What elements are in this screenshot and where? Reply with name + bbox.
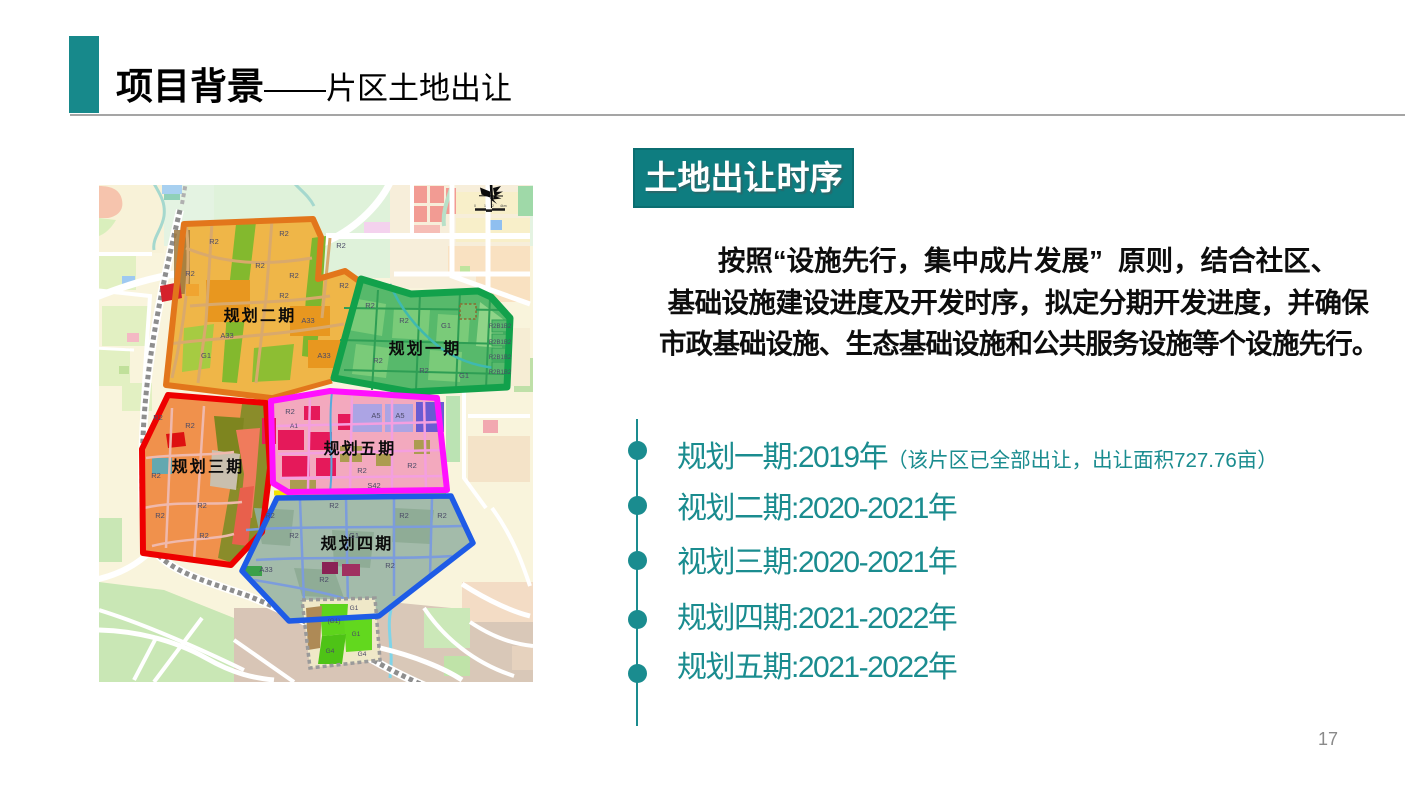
svg-text:(G1): (G1) — [328, 618, 341, 625]
svg-text:规划二期: 规划二期 — [224, 306, 297, 325]
svg-text:R2: R2 — [285, 407, 295, 416]
svg-text:R2: R2 — [357, 466, 367, 475]
svg-text:R2: R2 — [151, 471, 161, 480]
svg-text:G1: G1 — [441, 321, 451, 330]
svg-text:A5: A5 — [395, 411, 404, 420]
svg-text:规划五期: 规划五期 — [324, 439, 397, 458]
svg-text:R2: R2 — [437, 511, 447, 520]
svg-text:R2: R2 — [399, 511, 409, 520]
svg-text:R2: R2 — [365, 301, 375, 310]
svg-text:S42: S42 — [367, 481, 380, 490]
svg-text:R2: R2 — [197, 501, 207, 510]
svg-text:R2: R2 — [153, 413, 163, 422]
svg-text:R2: R2 — [155, 511, 165, 520]
svg-text:R2: R2 — [407, 461, 417, 470]
svg-text:R2: R2 — [199, 531, 209, 540]
svg-text:R2: R2 — [385, 561, 395, 570]
svg-text:G1: G1 — [459, 371, 469, 380]
svg-text:R2: R2 — [279, 229, 289, 238]
svg-text:R2: R2 — [373, 356, 383, 365]
svg-text:规划三期: 规划三期 — [172, 457, 245, 476]
svg-text:1: 1 — [484, 204, 486, 208]
svg-text:R2B1B2: R2B1B2 — [489, 340, 512, 346]
svg-text:A33: A33 — [220, 331, 233, 340]
svg-text:G4: G4 — [358, 651, 367, 658]
svg-text:G1: G1 — [201, 351, 211, 360]
svg-text:R2: R2 — [329, 501, 339, 510]
svg-text:R2: R2 — [279, 291, 289, 300]
svg-text:R2: R2 — [399, 316, 409, 325]
svg-text:A33: A33 — [317, 351, 330, 360]
svg-text:R2B1B2: R2B1B2 — [489, 370, 512, 376]
svg-text:R2: R2 — [339, 281, 349, 290]
svg-text:R2: R2 — [265, 511, 275, 520]
svg-text:A33: A33 — [301, 316, 314, 325]
svg-text:R2: R2 — [319, 575, 329, 584]
svg-text:R2B1B2: R2B1B2 — [489, 355, 512, 361]
svg-text:R2: R2 — [289, 531, 299, 540]
svg-text:R2B1B2: R2B1B2 — [489, 324, 512, 330]
svg-text:R2: R2 — [185, 269, 195, 278]
svg-text:规划一期: 规划一期 — [389, 339, 462, 358]
svg-text:R2: R2 — [209, 237, 219, 246]
svg-text:0: 0 — [474, 204, 476, 208]
svg-text:G4: G4 — [326, 648, 335, 655]
svg-text:R2: R2 — [289, 271, 299, 280]
svg-text:A1: A1 — [290, 423, 298, 430]
svg-text:R2: R2 — [185, 421, 195, 430]
svg-text:A5: A5 — [371, 411, 380, 420]
svg-text:G1: G1 — [352, 631, 361, 638]
svg-text:2: 2 — [492, 204, 494, 208]
svg-text:R2: R2 — [336, 241, 346, 250]
svg-text:4km: 4km — [500, 204, 507, 208]
svg-text:G1: G1 — [349, 531, 359, 540]
svg-text:R2: R2 — [255, 261, 265, 270]
svg-text:A33: A33 — [259, 565, 272, 574]
svg-text:R2: R2 — [419, 366, 429, 375]
svg-text:G1: G1 — [350, 605, 359, 612]
